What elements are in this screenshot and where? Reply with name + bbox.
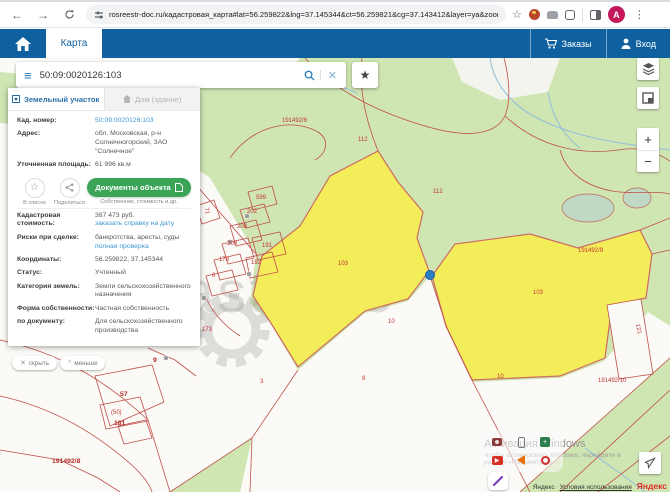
zoom-controls: + − [637, 128, 659, 172]
pencil-icon [492, 475, 504, 487]
map-parcel-label: 10 [497, 374, 504, 380]
search-bar: ≡ | ✕ [16, 62, 346, 88]
clear-search-icon[interactable]: ✕ [326, 69, 346, 82]
chevron-up-icon: ^ [68, 360, 71, 367]
browser-toolbar: ← → rosreestr-doc.ru/кадастровая_карта#l… [0, 0, 670, 28]
address-bar[interactable]: rosreestr-doc.ru/кадастровая_карта#lat=5… [86, 5, 506, 24]
side-panel-icon[interactable] [590, 10, 601, 20]
close-icon: ✕ [20, 359, 26, 367]
site-settings-icon[interactable] [94, 10, 104, 20]
map-parcel-label: 57 [120, 391, 128, 398]
login-button[interactable]: Вход [606, 29, 670, 58]
menu-burger-icon[interactable]: ≡ [16, 69, 40, 82]
tab-building-label: Дом (здание) [135, 95, 181, 104]
map-parcel-label: (50) [111, 410, 122, 416]
field-status: Статус: Учтенный [17, 269, 191, 278]
field-land-category: Категория земель: Земли сельскохозяйстве… [17, 283, 191, 301]
cad-number-link[interactable]: 50:09:0020126:103 [95, 117, 154, 126]
map-parcel-label: 9 [153, 357, 157, 364]
menu-kebab-icon[interactable]: ⋮ [634, 8, 645, 21]
field-cad-number: Кад. номер: 50:09:0020126:103 [17, 117, 191, 126]
map-parcel-label: 173 [202, 327, 212, 333]
bookmark-icon[interactable]: ☆ [512, 8, 522, 21]
field-coordinates: Координаты: 56.259822, 37.145344 [17, 256, 191, 265]
field-cad-cost: Кадастровая стоимость: 387 473 руб. зака… [17, 212, 191, 230]
map-parcel-label: 178 [219, 257, 229, 263]
map-attribution: Яндекс Условия использования Яндекс [533, 481, 667, 491]
map-parcel-label: 3 [260, 379, 263, 385]
tab-land-parcel[interactable]: Земельный участок [8, 88, 104, 110]
extensions-icon[interactable] [565, 10, 575, 20]
user-icon [621, 38, 631, 49]
search-icon[interactable] [304, 70, 315, 81]
parcel-info-panel: Земельный участок Дом (здание) Кад. номе… [8, 88, 200, 346]
profile-avatar[interactable]: A [608, 6, 625, 23]
field-address: Адрес: обл. Московская, р-н Солнечногорс… [17, 130, 191, 156]
annotate-pencil-button[interactable] [488, 472, 508, 490]
forward-icon[interactable]: → [34, 6, 52, 24]
parcel-icon [12, 95, 20, 103]
shield-icon[interactable]: + [540, 437, 551, 448]
fullscreen-icon [642, 92, 654, 104]
map-parcel-label: 192 [251, 260, 261, 266]
orders-button[interactable]: Заказы [530, 29, 606, 58]
field-area: Уточненная площадь: 61 996 кв.м [17, 161, 191, 170]
favorites-button[interactable]: ★ [352, 62, 378, 88]
toolbar-divider [582, 8, 583, 22]
back-icon[interactable]: ← [8, 6, 26, 24]
map-parcel-label: 191492/9 [578, 248, 603, 254]
map-parcel-label: 103 [338, 261, 348, 267]
zoom-in-button[interactable]: + [637, 128, 659, 150]
house-icon [123, 95, 131, 103]
layers-button[interactable] [637, 58, 659, 80]
browser-ring-icon[interactable] [540, 455, 551, 466]
map-parcel-label: 10 [388, 319, 395, 325]
map-parcel-label: 191 [262, 243, 272, 249]
map-parcel-label: 181 [114, 420, 125, 427]
map-parcel-label: 71 [203, 207, 210, 215]
map-parcel-label: 209 [227, 241, 237, 247]
zoom-out-button[interactable]: − [637, 150, 659, 172]
layers-icon [642, 63, 655, 75]
map-parcel-label: 599 [256, 195, 266, 201]
map-parcel-label: 103 [533, 290, 543, 296]
extension-icon-2[interactable] [547, 11, 558, 19]
terms-link[interactable]: Условия использования [560, 484, 632, 491]
hide-panel-button[interactable]: ✕ скрыть [12, 356, 57, 370]
yandex-logo: Яндекс [637, 481, 667, 491]
map-parcel-label: 208 [237, 224, 247, 230]
map-parcel-label: 112 [433, 189, 443, 195]
document-icon [175, 183, 183, 192]
field-risks: Риски при сделке: банкротства, аресты, с… [17, 234, 191, 252]
map-parcel-label: 191492/6 [282, 118, 307, 124]
fullscreen-button[interactable] [637, 87, 659, 109]
video-icon[interactable]: ▶ [492, 455, 503, 466]
map-parcel-label: 8 [362, 376, 365, 382]
cart-icon [545, 38, 557, 49]
tab-land-parcel-label: Земельный участок [24, 95, 99, 104]
search-input[interactable] [40, 70, 304, 81]
add-to-list-button[interactable]: ☆ В список [17, 178, 52, 206]
collapse-panel-button[interactable]: ^ меньше [60, 356, 105, 370]
full-check-link[interactable]: полная проверка [95, 243, 149, 252]
home-icon [15, 37, 31, 51]
tab-karta[interactable]: Карта [46, 29, 102, 58]
map-parcel-label: 112 [358, 137, 368, 143]
share-button[interactable]: Поделиться [52, 178, 87, 206]
order-certificate-link[interactable]: заказать справку на дату [95, 220, 174, 229]
map-parcel-label: 6 [212, 273, 215, 279]
home-button[interactable] [0, 29, 46, 58]
field-ownership: Форма собственности: Частная собственнос… [17, 305, 191, 314]
field-by-document: по документу: Для сельскохозяйственного … [17, 318, 191, 336]
camera-icon[interactable] [492, 437, 503, 448]
location-arrow-icon [644, 457, 656, 469]
star-icon: ☆ [25, 178, 45, 198]
map-parcel-label: 202 [247, 209, 257, 215]
site-header: Карта Заказы Вход [0, 29, 670, 58]
extension-icon-1[interactable] [529, 9, 540, 20]
object-documents-button[interactable]: Документы объекта [87, 178, 191, 197]
reload-icon[interactable] [60, 6, 78, 24]
screen-share-widget: + ▶ [479, 430, 563, 472]
url-text: rosreestr-doc.ru/кадастровая_карта#lat=5… [109, 10, 498, 19]
speaker-icon[interactable] [516, 455, 527, 466]
map-parcel-label: 191492/8 [52, 458, 80, 465]
phone-icon[interactable] [516, 437, 527, 448]
search-divider: | [315, 69, 326, 81]
selected-parcel-marker [426, 271, 435, 280]
tab-building[interactable]: Дом (здание) [104, 88, 201, 110]
attribution-provider: Яндекс [533, 484, 555, 491]
locate-button[interactable] [639, 452, 661, 474]
share-icon [60, 178, 80, 198]
login-label: Вход [636, 39, 656, 49]
map-parcel-label: 191492/10 [598, 378, 626, 384]
orders-label: Заказы [562, 39, 592, 49]
